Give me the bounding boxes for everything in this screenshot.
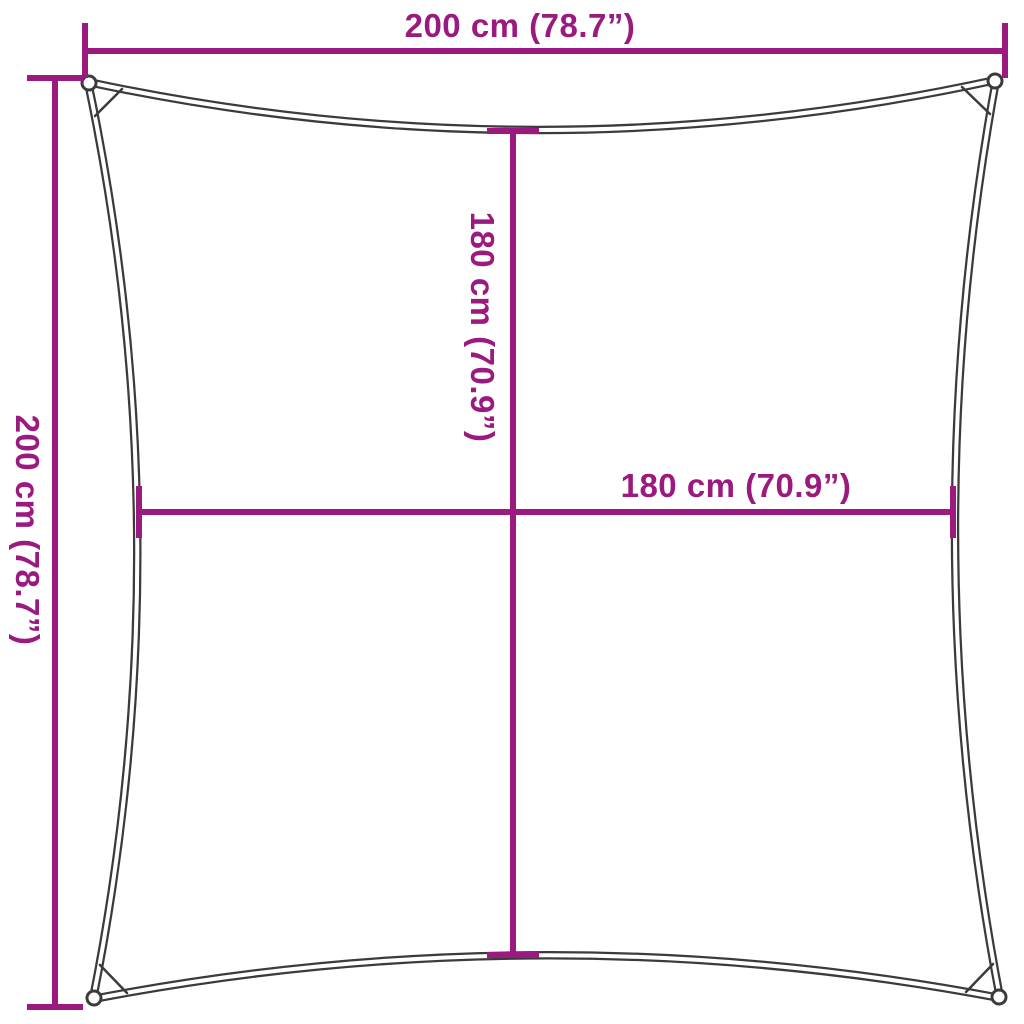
grommet-top-left-icon: [82, 76, 96, 90]
grommet-bottom-left-icon: [87, 991, 101, 1005]
dimension-label-outer-height: 200 cm (78.7”): [9, 415, 45, 646]
dimension-label-inner-width: 180 cm (70.9”): [621, 468, 852, 504]
grommet-top-right-icon: [988, 74, 1002, 88]
grommet-bottom-right-icon: [992, 990, 1006, 1004]
shade-sail-drawing: [0, 0, 1024, 1024]
sail-outline: [88, 80, 1000, 999]
dimension-label-outer-width: 200 cm (78.7”): [405, 8, 636, 44]
dimension-diagram: 200 cm (78.7”) 200 cm (78.7”) 180 cm (70…: [0, 0, 1024, 1024]
dimension-label-inner-height: 180 cm (70.9”): [464, 212, 500, 443]
shade-sail: [82, 74, 1006, 1005]
